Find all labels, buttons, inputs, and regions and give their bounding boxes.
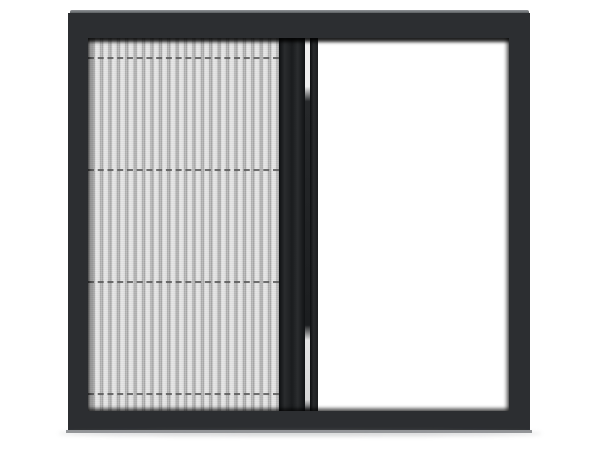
window-opening [88, 38, 509, 411]
window-frame [68, 13, 530, 430]
floor-shadow [58, 431, 542, 436]
pleated-mesh-screen [88, 38, 279, 411]
open-pane [318, 38, 509, 411]
screen-handle-bar [279, 38, 305, 411]
center-rail [310, 38, 318, 411]
mesh-cord-line [88, 57, 279, 59]
mesh-cord-line [88, 281, 279, 283]
mesh-cord-line [88, 169, 279, 171]
pleated-screen-window-photo [0, 0, 600, 450]
mesh-cord-line [88, 393, 279, 395]
